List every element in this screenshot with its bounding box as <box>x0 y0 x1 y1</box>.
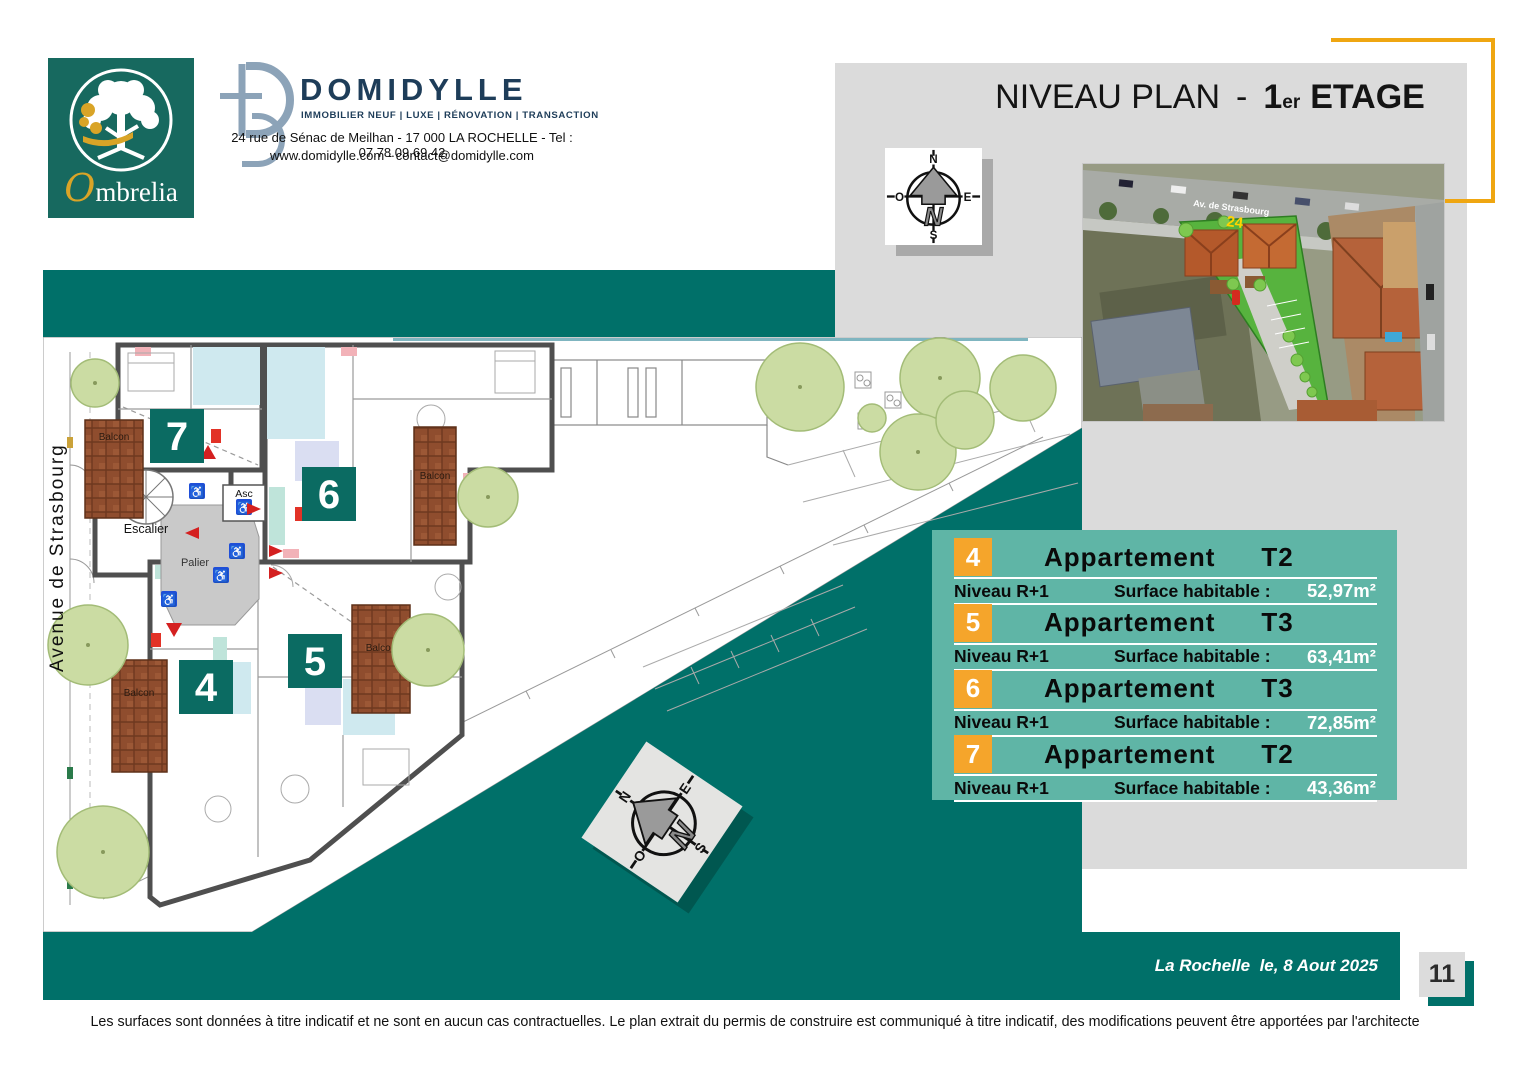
brochure-page: Ombrelia DOMIDYLLE IMMOBILIER NEUF | LUX… <box>0 0 1527 1080</box>
apartment-row-7: 7 Appartement T2 Niveau R+1 Surface habi… <box>954 734 1377 800</box>
apartment-number-badge: 7 <box>954 735 992 773</box>
apartment-level: Niveau R+1 <box>954 646 1114 667</box>
apartment-title: Appartement T3 <box>1044 673 1294 704</box>
date-line: La Rochelle le, 8 Aout 2025 <box>1155 956 1400 976</box>
domidylle-wordmark: DOMIDYLLE <box>300 72 528 108</box>
svg-text:♿: ♿ <box>230 545 245 559</box>
svg-text:♿: ♿ <box>162 593 177 607</box>
apartment-level: Niveau R+1 <box>954 778 1114 799</box>
ombrelia-tree-icon <box>48 58 194 178</box>
svg-text:♿: ♿ <box>190 485 205 499</box>
palier-label: Palier <box>181 557 209 569</box>
domidylle-logo-block: DOMIDYLLE IMMOBILIER NEUF | LUXE | RÉNOV… <box>212 58 592 178</box>
teal-bottom-band: La Rochelle le, 8 Aout 2025 <box>43 932 1400 1000</box>
teal-top-band <box>43 270 835 337</box>
red-car <box>1232 290 1240 305</box>
compass-north-label: N <box>929 153 937 166</box>
surface-value: 43,36m² <box>1307 777 1376 799</box>
aerial-street-number: 24 <box>1226 213 1245 232</box>
escalier-label: Escalier <box>124 522 168 536</box>
compass-east-label: E <box>964 191 972 204</box>
surface-label: Surface habitable : <box>1114 646 1307 667</box>
aerial-photo: Av. de Strasbourg 24 <box>1082 163 1445 422</box>
unit-badge-4: 4 <box>195 666 218 710</box>
avenue-street-label: Avenue de Strasbourg <box>47 443 68 672</box>
disclaimer-text: Les surfaces sont données à titre indica… <box>43 1014 1467 1030</box>
domidylle-tagline: IMMOBILIER NEUF | LUXE | RÉNOVATION | TR… <box>301 110 599 121</box>
apartment-number-badge: 4 <box>954 538 992 576</box>
ombrelia-logo: Ombrelia <box>48 58 194 218</box>
surface-value: 63,41m² <box>1307 646 1376 668</box>
pool <box>1385 332 1402 342</box>
unit-badge-5: 5 <box>304 640 326 684</box>
svg-text:♿: ♿ <box>214 569 229 583</box>
unit-badge-6: 6 <box>318 473 340 517</box>
title-prefix: NIVEAU PLAN <box>995 78 1220 117</box>
apartment-title: Appartement T2 <box>1044 739 1294 770</box>
compass-rose: N S O E N <box>885 148 982 245</box>
apartment-row-4: 4 Appartement T2 Niveau R+1 Surface habi… <box>954 537 1377 603</box>
apartment-row-5: 5 Appartement T3 Niveau R+1 Surface habi… <box>954 603 1377 669</box>
surface-label: Surface habitable : <box>1114 581 1307 602</box>
ombrelia-name-rest: mbrelia <box>95 177 177 207</box>
apartment-number-badge: 5 <box>954 604 992 642</box>
apartment-row-6: 6 Appartement T3 Niveau R+1 Surface habi… <box>954 669 1377 735</box>
floor-plan: ♿ ♿ ♿ ♿ ♿ Balcon Balc <box>43 337 1082 932</box>
apartment-title: Appartement T3 <box>1044 607 1294 638</box>
surface-value: 72,85m² <box>1307 712 1376 734</box>
palier-landing <box>161 505 259 625</box>
balcon-label-7: Balcon <box>99 432 130 443</box>
surface-label: Surface habitable : <box>1114 712 1307 733</box>
ombrelia-wordmark: Ombrelia <box>48 166 194 210</box>
compass-west-label: O <box>895 191 904 204</box>
apartment-level: Niveau R+1 <box>954 581 1114 602</box>
compass-center-letter: N <box>924 202 944 232</box>
domidylle-web: www.domidylle.com - contact@domidylle.co… <box>212 148 592 163</box>
unit-badge-7: 7 <box>166 415 188 459</box>
surface-label: Surface habitable : <box>1114 778 1307 799</box>
surface-value: 52,97m² <box>1307 580 1376 602</box>
balcon-label-4: Balcon <box>124 688 155 699</box>
apartment-info-panel: 4 Appartement T2 Niveau R+1 Surface habi… <box>932 530 1397 800</box>
balcon-label-6: Balcon <box>420 471 451 482</box>
apartment-number-badge: 6 <box>954 670 992 708</box>
apartment-level: Niveau R+1 <box>954 712 1114 733</box>
ombrelia-gold-initial: O <box>64 166 95 210</box>
page-number: 11 <box>1419 952 1465 997</box>
title-dash: - <box>1236 78 1247 117</box>
title-level: 1 <box>1263 78 1282 117</box>
asc-label: Asc <box>235 488 253 500</box>
apartment-title: Appartement T2 <box>1044 542 1294 573</box>
